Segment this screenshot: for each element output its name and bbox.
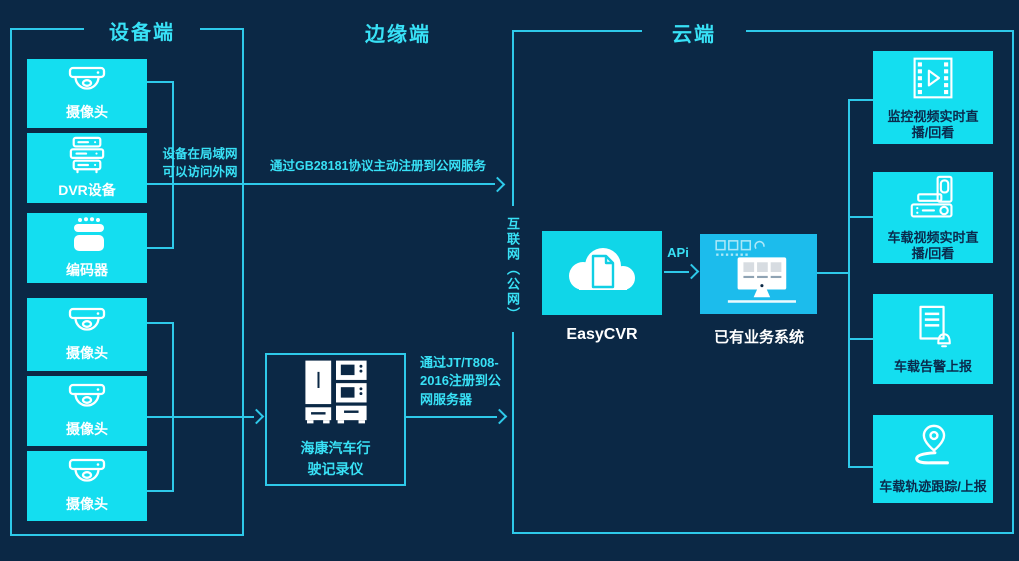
location-track-icon	[907, 423, 959, 476]
cloud-output-label: 车载视频实时直 播/回看	[887, 230, 978, 262]
alert-report-icon	[908, 303, 958, 356]
cloud-output-label: 车载轨迹跟踪/上报	[879, 479, 987, 495]
connector-line	[406, 416, 497, 418]
device-box-label: 摄像头	[66, 421, 108, 438]
device-box-label: 编码器	[66, 262, 108, 279]
device-box-camera-1: 摄像头	[27, 59, 147, 128]
business-system-label: 已有业务系统	[694, 326, 824, 347]
architecture-diagram: 设备端 边缘端 云端 摄像头	[0, 0, 1019, 561]
film-play-icon	[909, 55, 957, 106]
cloud-output-box-alert: 车载告警上报	[873, 294, 993, 384]
connector-line	[848, 99, 850, 468]
business-system-node	[700, 234, 817, 314]
connector-line	[147, 81, 173, 83]
cloud-output-box-vehicle-live: 车载视频实时直 播/回看	[873, 172, 993, 263]
desktop-monitor-icon	[707, 236, 811, 313]
dome-camera-icon	[65, 66, 109, 101]
connector-line	[848, 466, 873, 468]
connector-line	[848, 338, 873, 340]
connector-line	[848, 216, 873, 218]
cloud-output-box-track: 车载轨迹跟踪/上报	[873, 415, 993, 503]
device-box-camera-4: 摄像头	[27, 451, 147, 521]
device-box-label: DVR设备	[58, 182, 116, 199]
connector-line	[848, 99, 873, 101]
connector-line	[147, 247, 173, 249]
device-box-label: 摄像头	[66, 104, 108, 121]
device-box-dvr: DVR设备	[27, 133, 147, 203]
arrowhead-icon	[490, 177, 506, 193]
device-box-label: 摄像头	[66, 345, 108, 362]
encoder-icon	[65, 216, 109, 259]
cloud-output-box-live: 监控视频实时直 播/回看	[873, 51, 993, 144]
arrowhead-icon	[492, 409, 508, 425]
jt808-protocol-label: 通过JT/T808- 2016注册到公 网服务器	[420, 354, 512, 409]
cloud-output-label: 监控视频实时直 播/回看	[887, 109, 978, 141]
lan-access-note: 设备在局域网 可以访问外网	[156, 146, 244, 182]
dashcam-recorder-label: 海康汽车行 驶记录仪	[301, 438, 371, 480]
device-box-label: 摄像头	[66, 496, 108, 513]
connector-line	[147, 490, 173, 492]
cloud-document-icon	[558, 242, 646, 305]
connector-line	[172, 322, 174, 492]
arrowhead-icon	[249, 409, 265, 425]
easycvr-node	[542, 231, 662, 315]
vehicle-dvr-icon	[906, 174, 960, 227]
connector-line	[817, 272, 848, 274]
device-section-title: 设备端	[84, 16, 200, 45]
edge-section-title: 边缘端	[336, 18, 460, 47]
device-box-camera-2: 摄像头	[27, 298, 147, 371]
connector-line	[147, 416, 254, 418]
dvr-icon	[65, 136, 109, 179]
easycvr-label: EasyCVR	[542, 326, 662, 344]
dome-camera-icon	[65, 307, 109, 342]
device-box-camera-3: 摄像头	[27, 376, 147, 446]
cloud-output-label: 车载告警上报	[894, 359, 972, 375]
gb28181-protocol-label: 通过GB28181协议主动注册到公网服务	[258, 155, 498, 174]
internet-public-network-label: 互联网（公网）	[500, 206, 525, 332]
device-box-encoder: 编码器	[27, 213, 147, 283]
dashcam-recorder-icon	[292, 359, 380, 430]
api-label: APi	[662, 245, 694, 260]
dashcam-recorder-box: 海康汽车行 驶记录仪	[265, 353, 406, 486]
cloud-section-title: 云端	[642, 18, 746, 47]
dome-camera-icon	[65, 383, 109, 418]
connector-line	[147, 322, 173, 324]
dome-camera-icon	[65, 458, 109, 493]
connector-line	[147, 183, 495, 185]
